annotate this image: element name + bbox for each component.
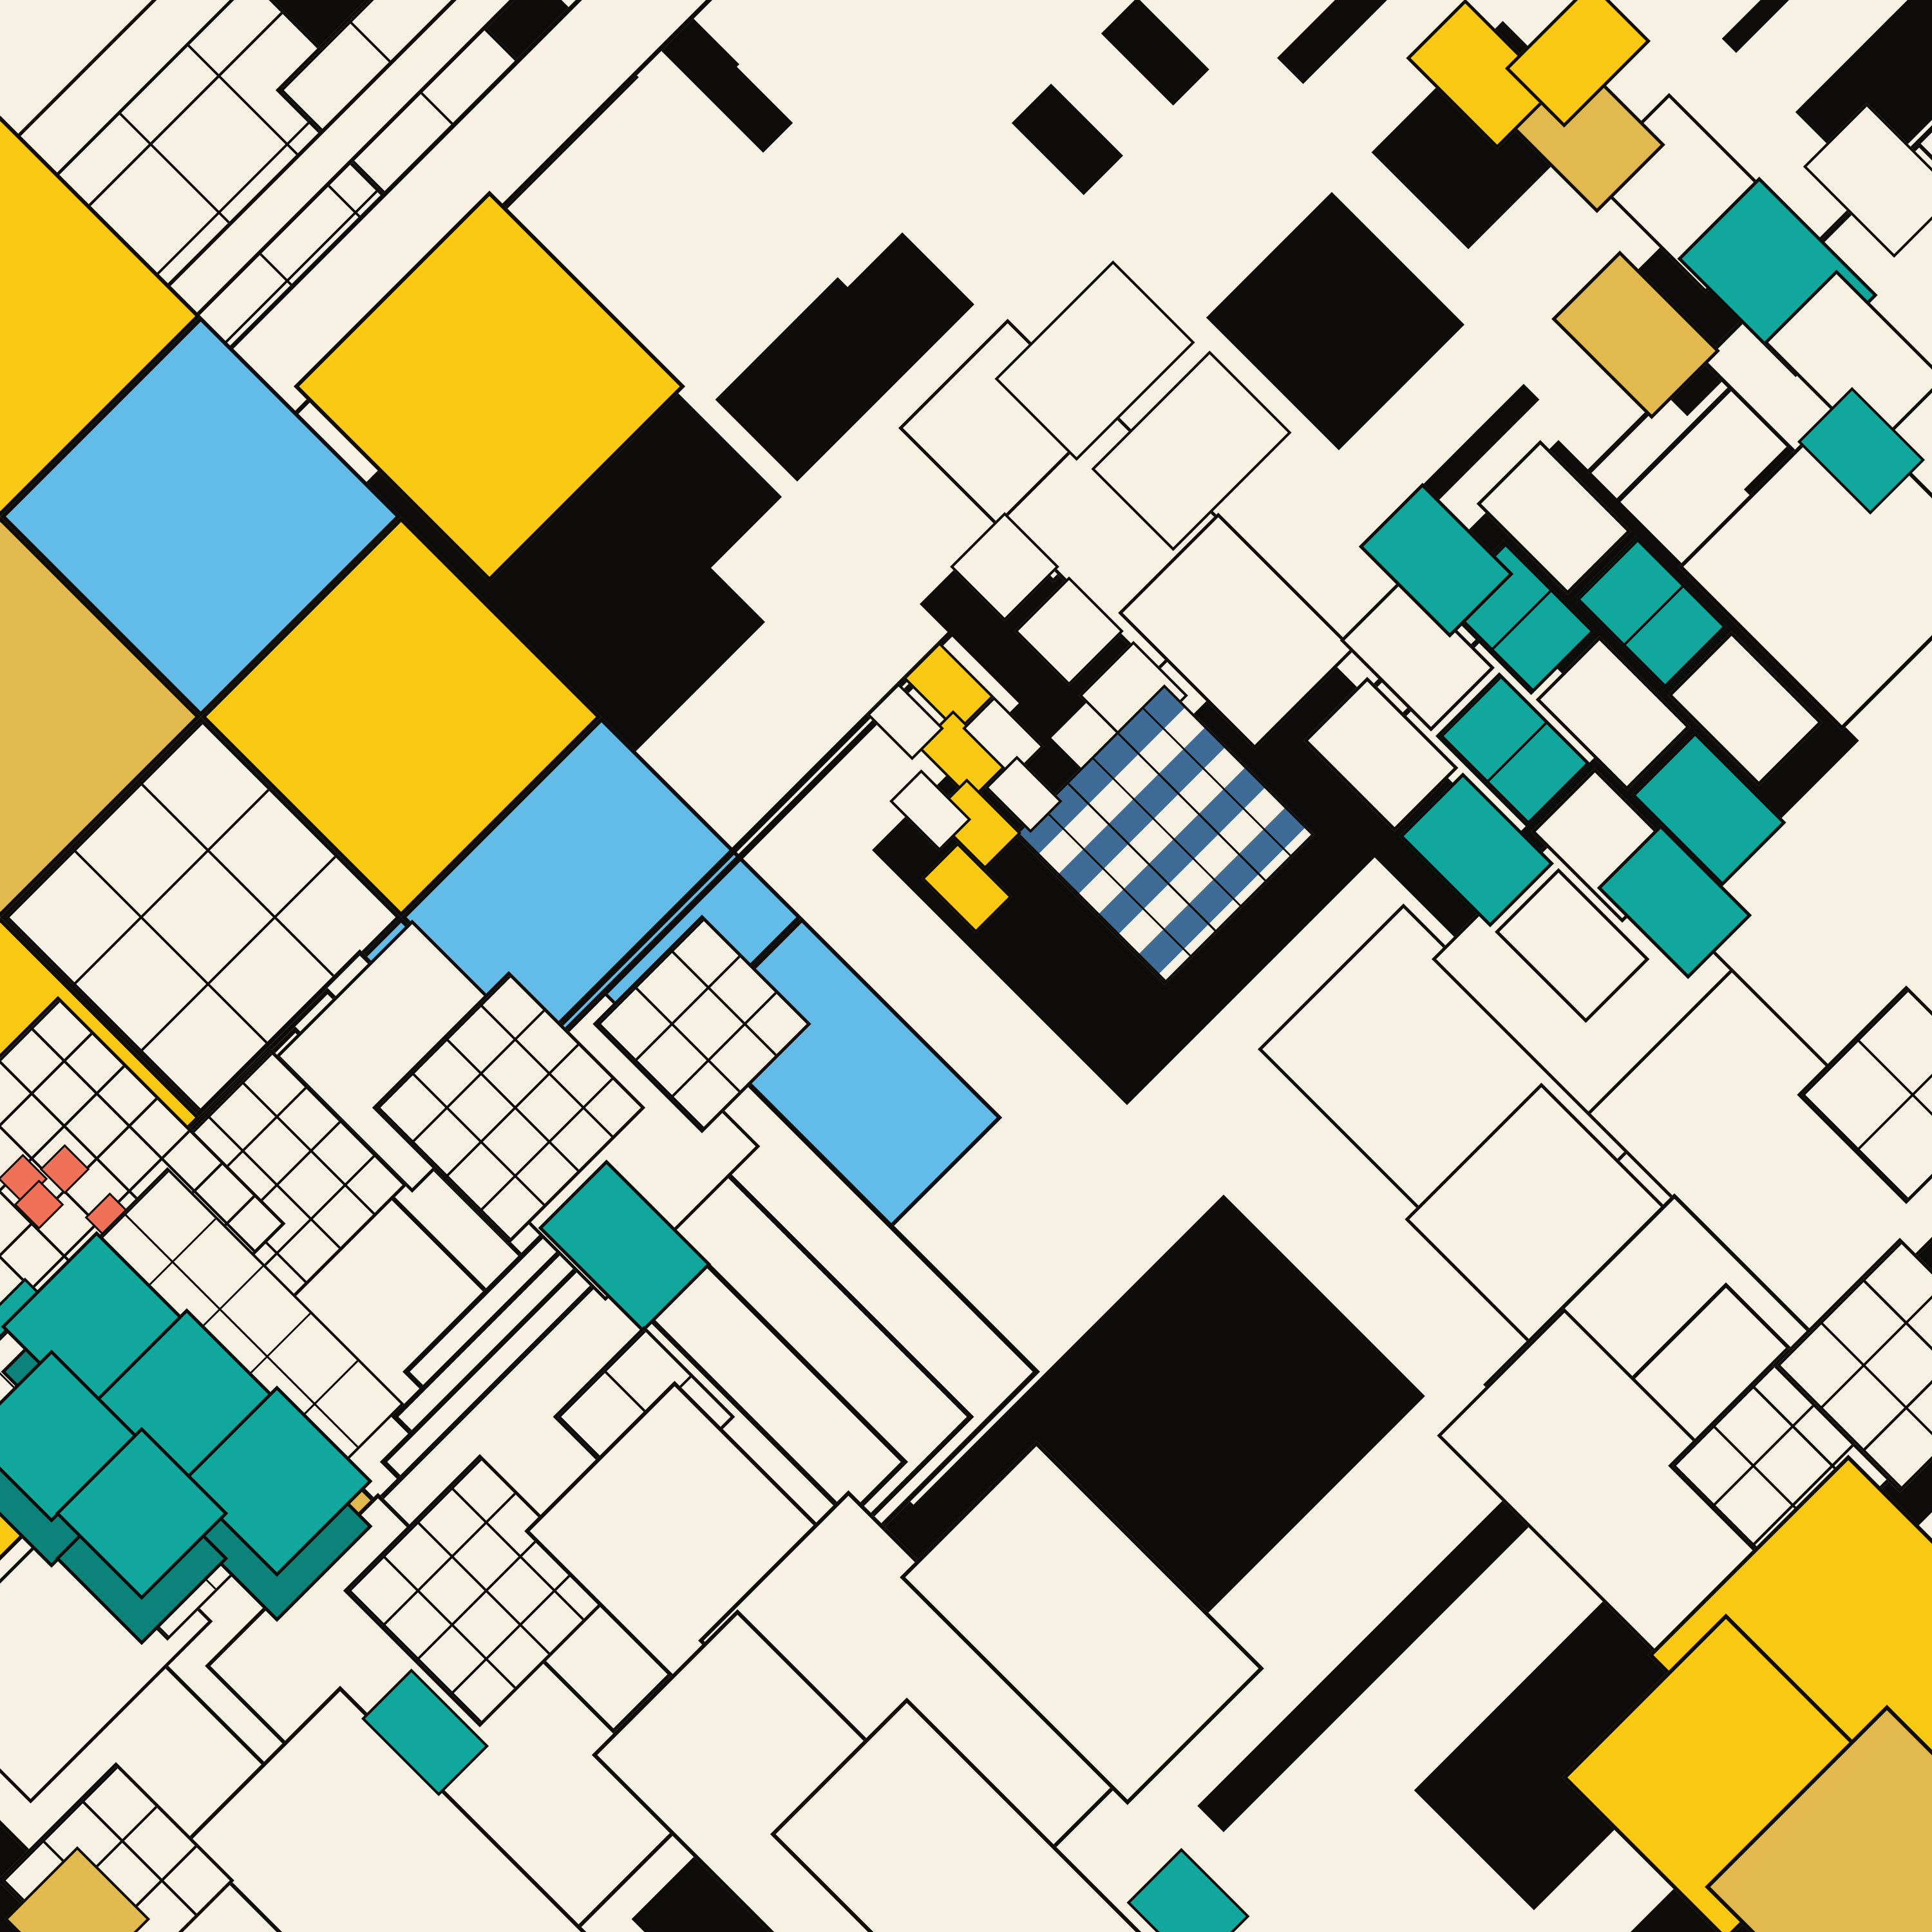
artwork-canvas [0,0,1932,1932]
teal-tile [1127,1848,1250,1932]
